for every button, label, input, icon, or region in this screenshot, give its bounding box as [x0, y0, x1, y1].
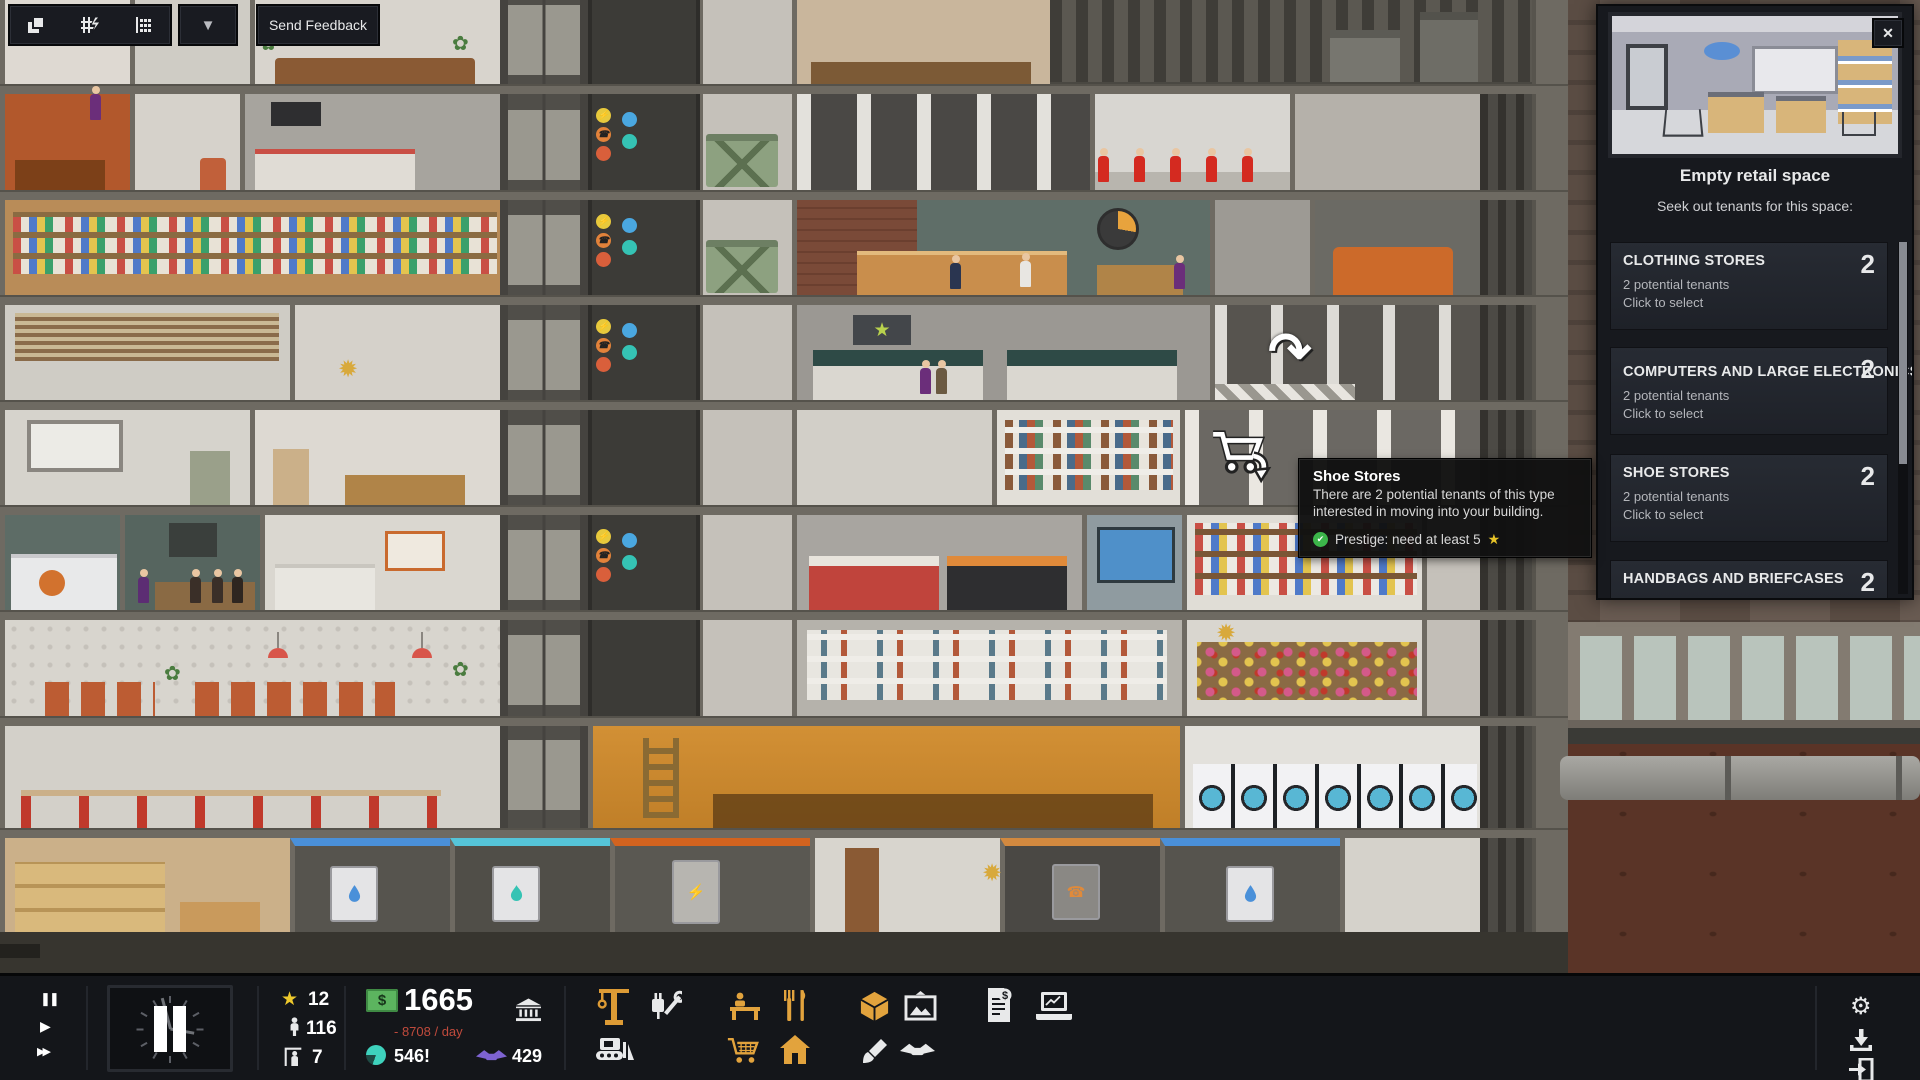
- clock-pause-bar: [154, 1006, 167, 1052]
- sunburst-decor-icon: ✹: [338, 358, 358, 382]
- buzz-icon: [366, 1045, 386, 1065]
- cafe-table: [1097, 265, 1183, 295]
- construction-crane-button[interactable]: [596, 986, 632, 1026]
- tenant-card-computers[interactable]: COMPUTERS AND LARGE ELECTRONICS 2 2 pote…: [1610, 347, 1888, 435]
- shopping-cart-sketch: [1663, 109, 1704, 137]
- potted-plant-icon: ✿: [452, 34, 469, 54]
- chair-row-2: [195, 682, 395, 716]
- checkout-counter: [1776, 96, 1826, 133]
- room-laundromat[interactable]: [1180, 726, 1480, 828]
- bolt-icon: ⚡: [687, 883, 706, 901]
- phone-line-icon: ☎: [598, 340, 609, 351]
- settings-gear-button[interactable]: ⚙: [1850, 992, 1872, 1021]
- tenant-line1: 2 potential tenants: [1623, 388, 1875, 403]
- tenant-line2: Click to select: [1623, 295, 1875, 310]
- booth: [1333, 247, 1453, 295]
- room-side-2[interactable]: [1422, 620, 1480, 716]
- retail-cart-button[interactable]: [726, 1036, 760, 1065]
- tooltip-body: There are 2 potential tenants of this ty…: [1313, 487, 1575, 521]
- phone-line-icon: ☎: [598, 129, 609, 140]
- requirement-star-icon: ★: [1488, 531, 1501, 548]
- potted-plant-icon: ✿: [164, 664, 181, 684]
- finances-invoice-button[interactable]: $: [984, 987, 1013, 1023]
- red-display: [809, 556, 939, 610]
- contracts-handshake-button[interactable]: [900, 1040, 935, 1062]
- desk: [180, 902, 260, 932]
- cashflow-value: - 8708 / day: [394, 1024, 463, 1039]
- requirement-text: Prestige: need at least 5: [1335, 532, 1481, 547]
- clock-pause-bar: [173, 1006, 186, 1052]
- water-icon: [622, 533, 637, 548]
- tenant-name: SHOE STORES: [1623, 465, 1875, 481]
- prestige-star-icon: ★: [281, 988, 298, 1011]
- phone-line-icon: ☎: [598, 235, 609, 246]
- bar-divider: [344, 986, 346, 1070]
- room-storage[interactable]: [0, 838, 290, 932]
- close-icon: ✕: [1882, 25, 1894, 42]
- deli-logo: [39, 570, 65, 596]
- sunburst-decor-icon: ✹: [982, 862, 1002, 886]
- gas-icon: [622, 345, 637, 360]
- room-sandwich-shop[interactable]: [260, 515, 500, 610]
- sidewalk: [1568, 728, 1920, 744]
- foundation: [0, 932, 1568, 973]
- restaurant-utensils-button[interactable]: [782, 989, 807, 1022]
- workbench-row: [713, 794, 1153, 828]
- bulldozer-button[interactable]: [592, 1036, 636, 1067]
- star-logo-icon: ★: [873, 319, 890, 342]
- person-figure: [212, 577, 223, 603]
- save-download-button[interactable]: [1848, 1028, 1874, 1052]
- room-grey[interactable]: [1290, 94, 1480, 190]
- utility-icons: ⚡ ☎: [596, 108, 696, 168]
- menu-board: [169, 523, 217, 557]
- game-clock: [107, 985, 233, 1072]
- room-cafeteria[interactable]: [0, 726, 500, 828]
- tenant-card-clothing[interactable]: CLOTHING STORES 2 2 potential tenants Cl…: [1610, 242, 1888, 330]
- trash-room-column[interactable]: [700, 0, 792, 716]
- worker-figure: [1134, 156, 1145, 182]
- tenant-line2: Click to select: [1623, 507, 1875, 522]
- panel-title: Empty retail space: [1598, 166, 1912, 186]
- panel-scrollbar-thumb[interactable]: [1899, 242, 1907, 464]
- store-ceiling: [1612, 16, 1898, 32]
- floor-slab: [0, 295, 1568, 305]
- floor-slab: [0, 400, 1568, 410]
- blueprint: [27, 420, 123, 472]
- panel-subtitle: Seek out tenants for this space:: [1598, 198, 1912, 214]
- tenant-count: 2: [1861, 354, 1875, 385]
- worker-figure: [1242, 156, 1253, 182]
- print-shelves: [807, 630, 1167, 700]
- deals-handshake-icon: [476, 1047, 507, 1066]
- phone-line-icon: ☎: [598, 550, 609, 561]
- room-electronics-store[interactable]: ★: [792, 305, 1210, 400]
- utility-icons: ⚡ ☎: [596, 319, 696, 379]
- door: [845, 848, 879, 932]
- washing-machines: [1193, 764, 1477, 828]
- money-value: 1665: [404, 982, 473, 1018]
- sofa: [275, 58, 475, 84]
- close-panel-button[interactable]: ✕: [1872, 18, 1904, 48]
- gas-heater: [492, 866, 540, 922]
- fast-forward-button[interactable]: ▶▶: [37, 1045, 48, 1058]
- person-figure: [138, 577, 149, 603]
- gas-icon: [622, 555, 637, 570]
- rooftop-unit: [1330, 30, 1400, 82]
- bar-divider: [564, 986, 566, 1070]
- chef-figure: [1020, 261, 1031, 287]
- floors-overlay-icon[interactable]: [134, 15, 154, 35]
- ladder: [643, 738, 679, 818]
- water-icon: [622, 218, 637, 233]
- water-heater: [330, 866, 378, 922]
- money-bill-icon: $: [366, 989, 398, 1012]
- file-cabinet: [190, 451, 230, 505]
- residence-house-button[interactable]: [779, 1034, 811, 1065]
- room-phone-store[interactable]: [240, 94, 500, 190]
- pizza-sign: [1097, 208, 1139, 250]
- worker-figure: [1206, 156, 1217, 182]
- panel-scrollbar-track[interactable]: [1898, 242, 1908, 594]
- phone-panel: ☎: [1052, 864, 1100, 920]
- water-heater-2: [1226, 866, 1274, 922]
- buzz-value: 546!: [394, 1046, 430, 1067]
- display-table-2: [1007, 350, 1177, 400]
- bar-divider: [257, 986, 259, 1070]
- room-corridor[interactable]: [810, 838, 1000, 932]
- person-figure: [232, 577, 243, 603]
- services-box-button[interactable]: [858, 989, 891, 1022]
- utility-icons: ⚡ ☎: [596, 529, 696, 589]
- tenant-card-handbags[interactable]: HANDBAGS AND BRIEFCASES 2: [1610, 560, 1888, 600]
- room-office-tan[interactable]: [792, 0, 1050, 84]
- floor-slab: [0, 190, 1568, 200]
- worker-figure: [1098, 156, 1109, 182]
- workbench: [1095, 172, 1295, 190]
- lightning-banner: [947, 556, 1067, 610]
- breaker-panel: ⚡: [672, 860, 720, 924]
- wood-counter: [857, 251, 1067, 295]
- bank-icon[interactable]: [516, 998, 541, 1022]
- dumpster: [706, 134, 778, 187]
- flower-tiers: [1197, 642, 1417, 700]
- room-grey-2[interactable]: [1210, 200, 1310, 295]
- elevator-shaft[interactable]: [500, 0, 588, 828]
- room-shoe-racks[interactable]: [290, 305, 500, 400]
- tooltip-requirement: ✔ Prestige: need at least 5 ★: [1313, 531, 1500, 548]
- hazard-stripe: [1215, 384, 1355, 400]
- display-table-1: [813, 350, 983, 400]
- cable-tv-icon: [596, 146, 611, 161]
- paint-brush-button[interactable]: [860, 1038, 888, 1065]
- room-pizza-restaurant[interactable]: [792, 200, 1210, 295]
- overlay-toolbar: [8, 4, 172, 46]
- room-office-2[interactable]: [250, 410, 500, 505]
- gas-icon: [622, 134, 637, 149]
- send-feedback-label: Send Feedback: [269, 17, 367, 33]
- send-feedback-button[interactable]: Send Feedback: [256, 4, 380, 46]
- underground-pipe: [1560, 756, 1920, 800]
- room-lobby-left[interactable]: [0, 620, 500, 716]
- exit-button[interactable]: [1848, 1058, 1874, 1080]
- tenant-card-shoes[interactable]: SHOE STORES 2 2 potential tenants Click …: [1610, 454, 1888, 542]
- room-architect-office[interactable]: [0, 410, 250, 505]
- elevator-doors: [508, 0, 580, 828]
- prestige-value: 12: [308, 989, 329, 1011]
- floor-slab: [0, 84, 1568, 94]
- stool-row: [21, 790, 441, 828]
- room-workshop[interactable]: [588, 726, 1180, 828]
- person-figure: [190, 577, 201, 603]
- cart-cursor-icon: [1210, 428, 1272, 484]
- room-diner[interactable]: [1310, 200, 1480, 295]
- room-water-art[interactable]: [1082, 515, 1182, 610]
- retail-space-illustration: [1608, 12, 1902, 158]
- room-workshop-kitchen[interactable]: [1090, 94, 1290, 190]
- deals-value: 429: [512, 1046, 542, 1067]
- person-figure: [1174, 263, 1185, 289]
- person-figure: [936, 368, 947, 394]
- room-deli-counter[interactable]: [0, 515, 120, 610]
- cable-tv-icon: [596, 567, 611, 582]
- gas-icon: [622, 240, 637, 255]
- game-screen: ★: [0, 0, 1920, 1080]
- empty-retail-panel: ✕ Empty retail space Seek out tenants fo…: [1596, 4, 1914, 600]
- svg-text:$: $: [1002, 990, 1008, 1002]
- room-exec-office[interactable]: [0, 94, 130, 190]
- water-icon: [622, 112, 637, 127]
- shoe-stores-tooltip: Shoe Stores There are 2 potential tenant…: [1298, 458, 1592, 558]
- tenant-line1: 2 potential tenants: [1623, 277, 1875, 292]
- population-icon: [288, 1017, 301, 1036]
- bar-divider: [1815, 986, 1817, 1070]
- play-button[interactable]: ▶: [40, 1018, 51, 1035]
- chair-row-1: [45, 682, 155, 716]
- tenant-count: 2: [1861, 567, 1875, 598]
- checkout-counter: [1708, 92, 1764, 133]
- collapse-toolbar-button[interactable]: ▼: [178, 4, 238, 46]
- desk: [345, 475, 465, 505]
- dumpster: [706, 240, 778, 293]
- desk: [15, 160, 105, 190]
- person-figure: [950, 263, 961, 289]
- rooftop-fan-unit: [1420, 12, 1478, 82]
- counter: [275, 564, 375, 610]
- room-waiting[interactable]: [130, 94, 240, 190]
- reports-laptop-button[interactable]: [1034, 991, 1074, 1022]
- box-stacks: [15, 862, 165, 932]
- store-window: [1752, 46, 1838, 94]
- tenant-line1: 2 potential tenants: [1623, 489, 1875, 504]
- chevron-down-icon: ▼: [201, 17, 216, 34]
- electricity-icon: ⚡: [598, 321, 609, 332]
- shoe-shelves: [13, 212, 497, 274]
- floor-slab: [0, 828, 1568, 838]
- room-shoe-store[interactable]: [0, 200, 500, 295]
- street-storefront: [1568, 622, 1920, 728]
- worker-figure: [1170, 156, 1181, 182]
- dollar-sign: $: [378, 992, 386, 1009]
- tenant-count: 2: [1861, 249, 1875, 280]
- potted-plant-icon: ✿: [452, 660, 469, 680]
- store-logo: [1704, 42, 1740, 60]
- sandwich-sign: [385, 531, 445, 571]
- electricity-icon: ⚡: [598, 531, 609, 542]
- person-figure: [90, 94, 101, 120]
- bottom-status-bar: ❚❚ ▶ ▶▶ ★ 12 116 7 $ 166: [0, 973, 1920, 1080]
- phone-icon: ☎: [1067, 883, 1086, 901]
- room-electronics-counters[interactable]: [792, 515, 1082, 610]
- sunburst-decor-icon: ✹: [1216, 622, 1236, 646]
- display-counter: [255, 149, 415, 190]
- cable-tv-icon: [596, 252, 611, 267]
- electricity-icon: ⚡: [598, 216, 609, 227]
- shopping-cart-sketch: [1842, 112, 1876, 136]
- utilities-overlay-icon[interactable]: [80, 15, 100, 35]
- star-sign: ★: [853, 315, 911, 345]
- electricity-icon: ⚡: [598, 110, 609, 121]
- tenant-name: CLOTHING STORES: [1623, 253, 1875, 269]
- store-sign: [271, 102, 321, 126]
- room-side-3[interactable]: [1340, 838, 1480, 932]
- room-office-blinds[interactable]: [0, 305, 290, 400]
- person-figure: [920, 368, 931, 394]
- rotate-furniture-cursor: ↷: [1268, 322, 1312, 382]
- water-icon: [622, 323, 637, 338]
- room-bookstore[interactable]: [992, 410, 1180, 505]
- cable-tv-icon: [596, 357, 611, 372]
- floor-slab: [0, 610, 1568, 620]
- room-colonnade-2[interactable]: [1210, 305, 1480, 400]
- rack-shelves: [303, 319, 493, 385]
- armchair: [200, 158, 226, 190]
- utilities-tools-button[interactable]: [648, 990, 682, 1022]
- tenant-name: HANDBAGS AND BRIEFCASES: [1623, 571, 1875, 587]
- room-print-shop[interactable]: [792, 620, 1182, 716]
- cabinet: [273, 449, 309, 505]
- layers-overlay-icon[interactable]: [26, 15, 46, 35]
- window-blinds: [15, 313, 279, 361]
- room-colonnade[interactable]: [792, 94, 1090, 190]
- decor-picture-button[interactable]: [904, 991, 937, 1021]
- tooltip-title: Shoe Stores: [1313, 468, 1577, 485]
- tenant-count: 2: [1861, 461, 1875, 492]
- book-shelves: [1005, 420, 1173, 490]
- pause-button[interactable]: ❚❚: [40, 991, 58, 1007]
- floor-slab: [0, 716, 1568, 726]
- move-ins-value: 7: [312, 1047, 323, 1069]
- move-ins-icon: [283, 1046, 303, 1066]
- check-circle-icon: ✔: [1313, 532, 1328, 547]
- desk-row: [811, 62, 1031, 84]
- room-office-3[interactable]: [792, 410, 992, 505]
- tenant-line2: Click to select: [1623, 406, 1875, 421]
- store-door: [1626, 44, 1668, 110]
- utility-icons: ⚡ ☎: [596, 214, 696, 274]
- population-value: 116: [306, 1018, 337, 1040]
- aquarium: [1097, 527, 1175, 583]
- tenant-name: COMPUTERS AND LARGE ELECTRONICS: [1623, 364, 1875, 380]
- office-desk-button[interactable]: [729, 992, 761, 1021]
- bar-divider: [86, 986, 88, 1070]
